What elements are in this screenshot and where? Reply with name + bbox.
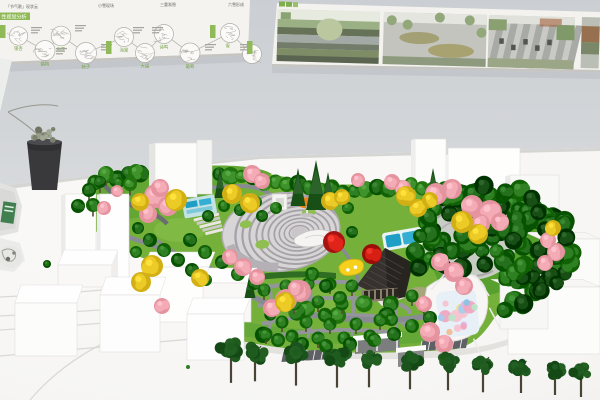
svg-text:海棠: 海棠 [120,47,129,54]
svg-text:柿子: 柿子 [82,64,91,71]
svg-text:小雪现场: 小雪现场 [98,2,114,8]
svg-text:三重渐隐: 三重渐隐 [160,1,176,7]
svg-text:银杏: 银杏 [14,45,23,52]
svg-text:葡萄: 葡萄 [186,63,195,70]
svg-text:性视觉分析: 性视觉分析 [2,14,27,21]
svg-text:大福: 大福 [141,63,150,70]
svg-text:六雪形成: 六雪形成 [228,1,244,7]
svg-text:「节气歌」现状云: 「节气歌」现状云 [6,3,38,9]
svg-text:诗鸣: 诗鸣 [160,44,169,51]
svg-text:蜡梅: 蜡梅 [41,61,50,68]
